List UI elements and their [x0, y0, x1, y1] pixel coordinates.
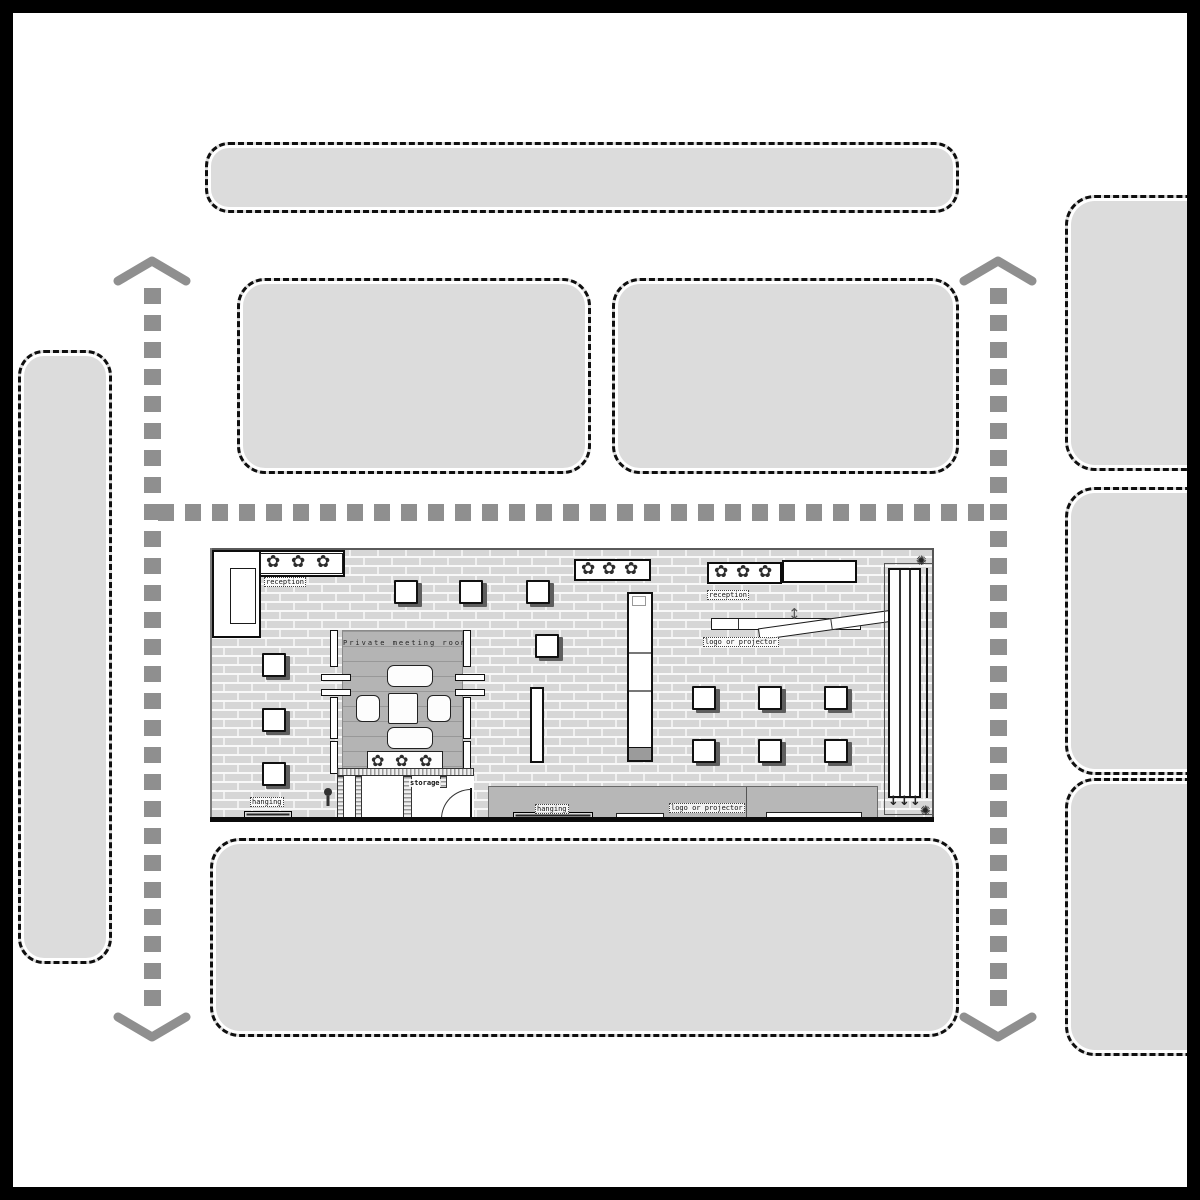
neighbor-block-right-top: [1065, 195, 1200, 471]
stool-icon: ✿: [266, 554, 280, 571]
bar-divider: [830, 619, 832, 629]
banner-unit: [888, 568, 921, 798]
meeting-table: [388, 693, 418, 724]
storage-wall: [440, 776, 447, 788]
neighbor-block-bottom: [210, 838, 959, 1037]
aisle-cross-dashed-line: [158, 504, 994, 521]
storage-door-swing-arc: [441, 789, 471, 819]
neighbor-block-mid-left: [237, 278, 591, 474]
bar-divider: [738, 619, 739, 629]
wall-slat: [330, 630, 338, 667]
stool-icon: ✿: [758, 564, 772, 581]
stool-icon: ✿: [581, 561, 595, 578]
swivel-rotation-arrow-icon: ↕: [788, 607, 801, 622]
storage-wall-top: [337, 768, 474, 776]
stool-icon: ✿: [371, 753, 384, 769]
stool-icon: ✿: [602, 561, 616, 578]
wall-slat-horizontal: [455, 689, 485, 696]
showcase-shelf-line: [629, 690, 651, 692]
reception-label-left: reception: [264, 577, 306, 587]
aisle-left-down-arrowhead: [113, 1012, 191, 1044]
tall-showcase: [627, 592, 653, 762]
showcase-top-notch: [632, 596, 646, 606]
brick-floor: [210, 548, 934, 822]
stool-icon: ✿: [714, 564, 728, 581]
banner-down-arrow-icon: ↓: [899, 795, 910, 808]
aisle-right-down-arrowhead: [959, 1012, 1037, 1044]
display-pedestal: [758, 686, 782, 710]
display-pedestal: [262, 762, 286, 786]
stool-icon: ✿: [291, 554, 305, 571]
logo-projector-label-top: logo or projector: [703, 637, 779, 647]
stool-icon: ✿: [624, 561, 638, 578]
stool-icon: ✿: [736, 564, 750, 581]
aisle-right-up-arrowhead: [959, 254, 1037, 286]
wall-slat-horizontal: [321, 689, 351, 696]
aisle-left-dashed-line: [144, 288, 161, 1010]
wall-slat-horizontal: [455, 674, 485, 681]
stool-icon: ✿: [316, 554, 330, 571]
private-meeting-room: Private meeting room ✿ ✿ ✿: [342, 630, 463, 776]
banner-strip-line: [899, 570, 901, 796]
display-pedestal: [692, 739, 716, 763]
banner-strip-line: [909, 570, 911, 796]
floor-stand-icon: [322, 786, 334, 808]
neighbor-block-mid-right: [612, 278, 959, 474]
exhibition-booth-floorplan: ✿ ✿ ✿ reception ✿ ✿ ✿ ✿ ✿ ✿ reception ↕ …: [210, 548, 934, 822]
stool-icon: ✿: [419, 753, 432, 769]
display-pedestal: [692, 686, 716, 710]
storage-wall: [337, 776, 344, 820]
corner-gear-icon: ✺: [916, 555, 927, 568]
display-panel: [530, 687, 544, 763]
armchair-right: [427, 695, 451, 722]
display-pedestal: [262, 653, 286, 677]
rear-display-band: hanging logo or projector: [488, 786, 878, 818]
logo-projector-label-band: logo or projector: [669, 803, 745, 813]
display-pedestal: [535, 634, 559, 658]
banner-down-arrow-icon: ↓: [888, 795, 899, 808]
showcase-base: [629, 747, 651, 760]
reception-label-right: reception: [707, 590, 749, 600]
storage-wall: [355, 776, 362, 820]
storage-room: storage: [337, 768, 474, 820]
wall-slat-horizontal: [321, 674, 351, 681]
display-pedestal: [459, 580, 483, 604]
reception-desk-right: [782, 560, 857, 583]
banner-unit-rail: [926, 568, 928, 798]
hanging-label-band: hanging: [535, 804, 569, 814]
wall-slat: [463, 697, 471, 739]
storage-label: storage: [409, 779, 441, 787]
stool-icon: ✿: [395, 753, 408, 769]
site-plan-canvas: ✿ ✿ ✿ reception ✿ ✿ ✿ ✿ ✿ ✿ reception ↕ …: [0, 0, 1200, 1200]
display-pedestal: [824, 686, 848, 710]
wall-slat: [463, 630, 471, 667]
band-divider: [746, 787, 747, 817]
sofa-top: [387, 665, 433, 687]
display-pedestal: [758, 739, 782, 763]
display-pedestal: [824, 739, 848, 763]
reception-counter-left-inner: [230, 568, 256, 624]
display-pedestal: [394, 580, 418, 604]
neighbor-block-right-bottom: [1065, 778, 1200, 1056]
wall-slat: [330, 697, 338, 739]
showcase-shelf-line: [629, 652, 651, 654]
armchair-left: [356, 695, 380, 722]
neighbor-block-right-middle: [1065, 487, 1200, 775]
display-pedestal: [526, 580, 550, 604]
meeting-room-label: Private meeting room: [343, 639, 462, 647]
booth-edge-bottom: [210, 817, 934, 822]
aisle-right-dashed-line: [990, 288, 1007, 1010]
sofa-bottom: [387, 727, 433, 749]
neighbor-block-left: [18, 350, 112, 964]
aisle-left-up-arrowhead: [113, 254, 191, 286]
display-pedestal: [262, 708, 286, 732]
hanging-label-floor: hanging: [250, 797, 284, 807]
neighbor-block-top: [205, 142, 959, 213]
